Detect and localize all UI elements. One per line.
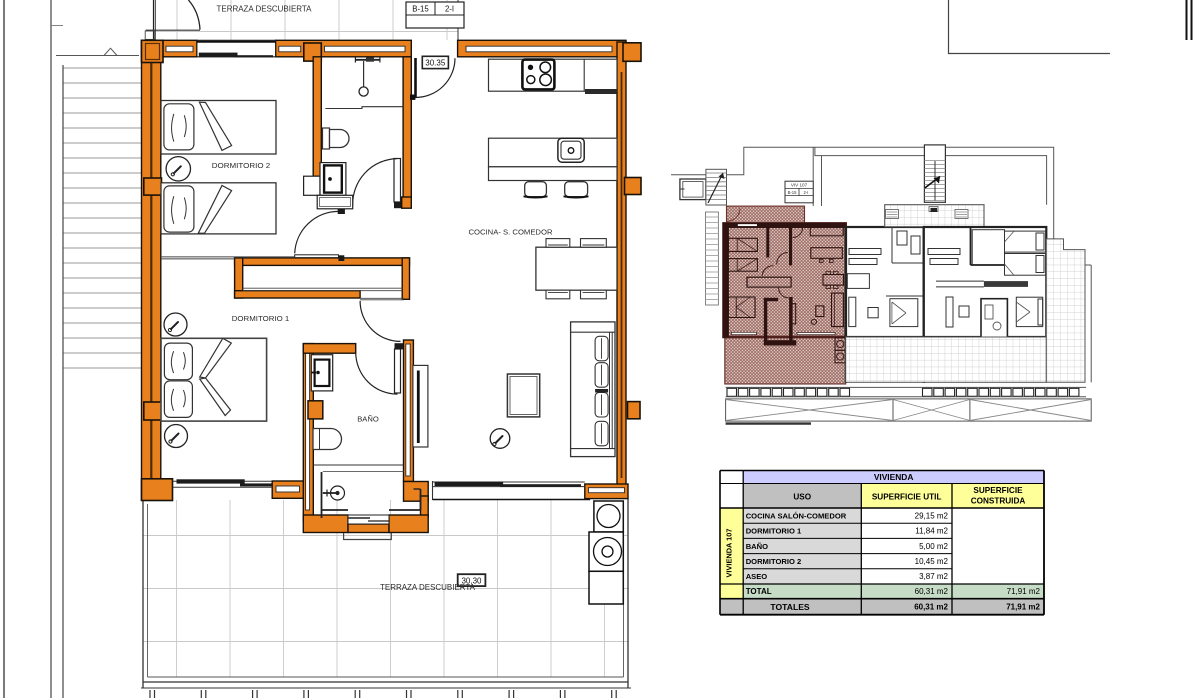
svg-text:30,30: 30,30 (461, 577, 482, 586)
svg-text:BAÑO: BAÑO (746, 542, 768, 551)
svg-text:COCINA SALÓN-COMEDOR: COCINA SALÓN-COMEDOR (746, 511, 847, 520)
svg-text:2-I: 2-I (445, 4, 454, 13)
svg-text:TERRAZA DESCUBIERTA: TERRAZA DESCUBIERTA (217, 4, 312, 14)
svg-text:2-I: 2-I (804, 190, 809, 195)
svg-text:SUPERFICIE UTIL: SUPERFICIE UTIL (872, 493, 942, 502)
svg-text:11,84 m2: 11,84 m2 (915, 527, 948, 536)
svg-text:VIV 107: VIV 107 (791, 183, 808, 188)
svg-text:CONSTRUIDA: CONSTRUIDA (971, 497, 1026, 506)
svg-text:COCINA- S. COMEDOR: COCINA- S. COMEDOR (469, 228, 554, 237)
svg-text:TOTAL: TOTAL (746, 587, 772, 596)
svg-text:3,87 m2: 3,87 m2 (919, 572, 948, 581)
svg-text:VIVIENDA: VIVIENDA (874, 472, 914, 482)
svg-text:VIVIENDA 107: VIVIENDA 107 (725, 528, 734, 577)
svg-text:B-15: B-15 (412, 4, 429, 13)
svg-text:DORMITORIO 1: DORMITORIO 1 (746, 527, 802, 536)
svg-text:DORMITORIO 2: DORMITORIO 2 (212, 161, 271, 170)
svg-text:29,15 m2: 29,15 m2 (915, 511, 949, 520)
svg-text:30.35: 30.35 (425, 59, 446, 68)
svg-text:10,45 m2: 10,45 m2 (915, 557, 949, 566)
svg-text:ASEO: ASEO (746, 572, 768, 581)
svg-text:TOTALES: TOTALES (770, 602, 810, 612)
svg-text:71,91 m2: 71,91 m2 (1006, 603, 1040, 612)
svg-text:DORMITORIO 1: DORMITORIO 1 (232, 314, 290, 323)
svg-text:71,91 m2: 71,91 m2 (1007, 587, 1041, 596)
svg-text:B-15: B-15 (788, 190, 798, 195)
svg-text:60,31 m2: 60,31 m2 (914, 603, 948, 612)
svg-text:USO: USO (793, 493, 811, 502)
svg-text:DORMITORIO 2: DORMITORIO 2 (746, 557, 802, 566)
svg-text:60,31 m2: 60,31 m2 (915, 587, 949, 596)
svg-text:5,00 m2: 5,00 m2 (919, 542, 948, 551)
svg-text:BAÑO: BAÑO (357, 414, 379, 423)
svg-text:SUPERFICIE: SUPERFICIE (973, 486, 1023, 495)
